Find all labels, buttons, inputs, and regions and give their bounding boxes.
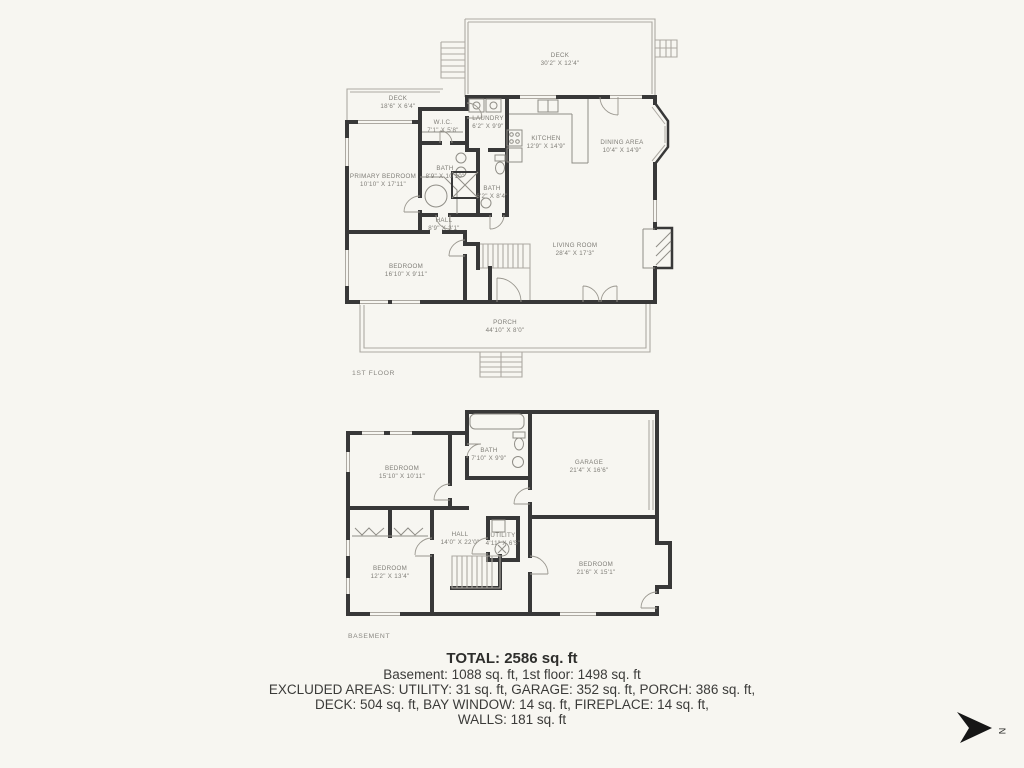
svg-text:HALL: HALL <box>452 531 469 538</box>
fireplace-hatch <box>643 229 671 268</box>
excluded-areas-line-2: DECK: 504 sq. ft, BAY WINDOW: 14 sq. ft,… <box>0 697 1024 712</box>
room-label-garage: GARAGE 21'4" X 16'6" <box>570 459 609 474</box>
svg-text:6'2" X 8'4": 6'2" X 8'4" <box>476 193 507 200</box>
excluded-areas-line-1: EXCLUDED AREAS: UTILITY: 31 sq. ft, GARA… <box>0 682 1024 697</box>
room-label-bedroom: BEDROOM 16'10" X 9'11" <box>385 263 427 278</box>
svg-text:12'9" X 14'9": 12'9" X 14'9" <box>527 143 566 150</box>
room-label-hall: HALL 8'9" X 3'1" <box>428 217 459 232</box>
svg-text:BATH: BATH <box>483 185 500 192</box>
svg-text:BEDROOM: BEDROOM <box>389 263 423 270</box>
room-label-dining-area: DINING AREA 10'4" X 14'9" <box>600 139 644 154</box>
room-label-primary-bedroom: PRIMARY BEDROOM 10'10" X 17'11" <box>350 173 416 188</box>
svg-text:44'10" X 8'0": 44'10" X 8'0" <box>486 327 525 334</box>
room-label-porch: PORCH 44'10" X 8'0" <box>486 319 525 334</box>
svg-text:8'9" X 3'1": 8'9" X 3'1" <box>428 225 459 232</box>
room-label-laundry: LAUNDRY 6'2" X 9'9" <box>472 115 504 130</box>
room-label-bath-2: BATH 6'2" X 8'4" <box>476 185 507 200</box>
north-label: N <box>997 728 1007 735</box>
svg-text:8'9" X 10'10": 8'9" X 10'10" <box>426 173 465 180</box>
svg-text:28'4" X 17'3": 28'4" X 17'3" <box>556 250 595 257</box>
porch-outline <box>360 302 650 377</box>
svg-text:DECK: DECK <box>551 52 570 59</box>
svg-text:14'0" X 22'0": 14'0" X 22'0" <box>441 539 480 546</box>
svg-text:15'10" X 10'11": 15'10" X 10'11" <box>379 473 425 480</box>
svg-text:DECK: DECK <box>389 95 408 102</box>
room-label-bedroom-2: BEDROOM 12'2" X 13'4" <box>371 565 410 580</box>
svg-text:GARAGE: GARAGE <box>575 459 603 466</box>
svg-text:16'10" X 9'11": 16'10" X 9'11" <box>385 271 427 278</box>
svg-text:21'6" X 15'1": 21'6" X 15'1" <box>577 569 616 576</box>
svg-text:30'2" X 12'4": 30'2" X 12'4" <box>541 60 580 67</box>
svg-text:21'4" X 16'6": 21'4" X 16'6" <box>570 467 609 474</box>
room-label-utility: UTILITY 4'11" X 6'5" <box>486 532 521 547</box>
svg-text:4'11" X 6'5": 4'11" X 6'5" <box>486 540 521 547</box>
svg-text:BATH: BATH <box>480 447 497 454</box>
svg-text:KITCHEN: KITCHEN <box>531 135 560 142</box>
svg-text:12'2" X 13'4": 12'2" X 13'4" <box>371 573 410 580</box>
room-label-bath: BATH 7'10" X 9'9" <box>471 447 506 462</box>
svg-text:7'1" X 5'8": 7'1" X 5'8" <box>427 127 458 134</box>
room-label-living-room: LIVING ROOM 28'4" X 17'3" <box>553 242 598 257</box>
svg-text:7'10" X 9'9": 7'10" X 9'9" <box>471 455 506 462</box>
room-label-kitchen: KITCHEN 12'9" X 14'9" <box>527 135 566 150</box>
svg-text:BEDROOM: BEDROOM <box>373 565 407 572</box>
room-label-wic: W.I.C. 7'1" X 5'8" <box>427 119 458 134</box>
svg-text:LIVING ROOM: LIVING ROOM <box>553 242 598 249</box>
excluded-areas-line-3: WALLS: 181 sq. ft <box>0 712 1024 727</box>
first-floor-caption: 1ST FLOOR <box>352 370 395 377</box>
svg-text:BEDROOM: BEDROOM <box>579 561 613 568</box>
walls <box>348 412 670 614</box>
total-area: TOTAL: 2586 sq. ft <box>0 650 1024 667</box>
svg-text:BEDROOM: BEDROOM <box>385 465 419 472</box>
svg-text:10'4" X 14'9": 10'4" X 14'9" <box>603 147 642 154</box>
room-label-hall: HALL 14'0" X 22'0" <box>441 531 480 546</box>
stairs <box>478 244 530 302</box>
garage-door <box>649 420 653 510</box>
svg-text:BATH: BATH <box>436 165 453 172</box>
svg-text:10'10" X 17'11": 10'10" X 17'11" <box>360 181 406 188</box>
svg-text:DINING AREA: DINING AREA <box>600 139 644 146</box>
room-label-deck-small: DECK 18'6" X 6'4" <box>380 95 415 110</box>
svg-text:HALL: HALL <box>436 217 453 224</box>
svg-text:PORCH: PORCH <box>493 319 517 326</box>
floor-plan-sheet: { "first_floor": { "caption": "1ST FLOOR… <box>0 0 1024 768</box>
svg-text:W.I.C.: W.I.C. <box>434 119 453 126</box>
room-label-bedroom-3: BEDROOM 21'6" X 15'1" <box>577 561 616 576</box>
first-floor-plan: DECK 30'2" X 12'4" DECK 18'6" X 6'4" W.I… <box>344 19 677 377</box>
basement-plan: BEDROOM 15'10" X 10'11" BATH 7'10" X 9'9… <box>345 412 670 640</box>
basement-caption: BASEMENT <box>348 633 390 640</box>
svg-text:6'2" X 9'9": 6'2" X 9'9" <box>472 123 503 130</box>
area-summary: TOTAL: 2586 sq. ft Basement: 1088 sq. ft… <box>0 650 1024 727</box>
floor-areas: Basement: 1088 sq. ft, 1st floor: 1498 s… <box>0 667 1024 682</box>
svg-text:LAUNDRY: LAUNDRY <box>472 115 504 122</box>
svg-text:UTILITY: UTILITY <box>490 532 515 539</box>
svg-text:18'6" X 6'4": 18'6" X 6'4" <box>380 103 415 110</box>
room-label-bedroom-1: BEDROOM 15'10" X 10'11" <box>379 465 425 480</box>
room-label-deck-large: DECK 30'2" X 12'4" <box>541 52 580 67</box>
svg-text:PRIMARY BEDROOM: PRIMARY BEDROOM <box>350 173 416 180</box>
